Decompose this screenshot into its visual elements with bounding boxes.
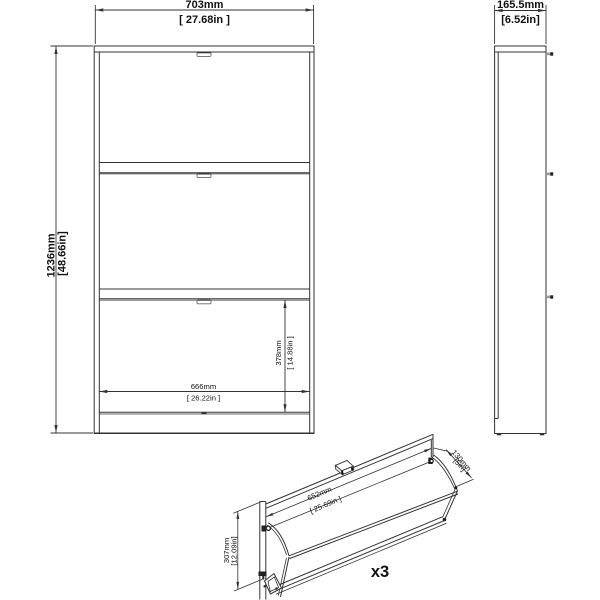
- svg-text:x3: x3: [371, 563, 389, 581]
- svg-text:[6.52in]: [6.52in]: [501, 14, 540, 26]
- svg-text:666mm: 666mm: [191, 382, 216, 391]
- svg-text:[48.66in]: [48.66in]: [57, 231, 69, 276]
- svg-text:[12.09in]: [12.09in]: [229, 536, 238, 565]
- svg-text:[ 26.22in ]: [ 26.22in ]: [187, 394, 220, 403]
- svg-text:[ 27.68in ]: [ 27.68in ]: [179, 14, 230, 26]
- svg-text:165.5mm: 165.5mm: [497, 0, 544, 11]
- svg-text:[ 14.88in ]: [ 14.88in ]: [286, 336, 295, 369]
- svg-text:378mm: 378mm: [274, 340, 283, 365]
- svg-text:703mm: 703mm: [186, 0, 224, 11]
